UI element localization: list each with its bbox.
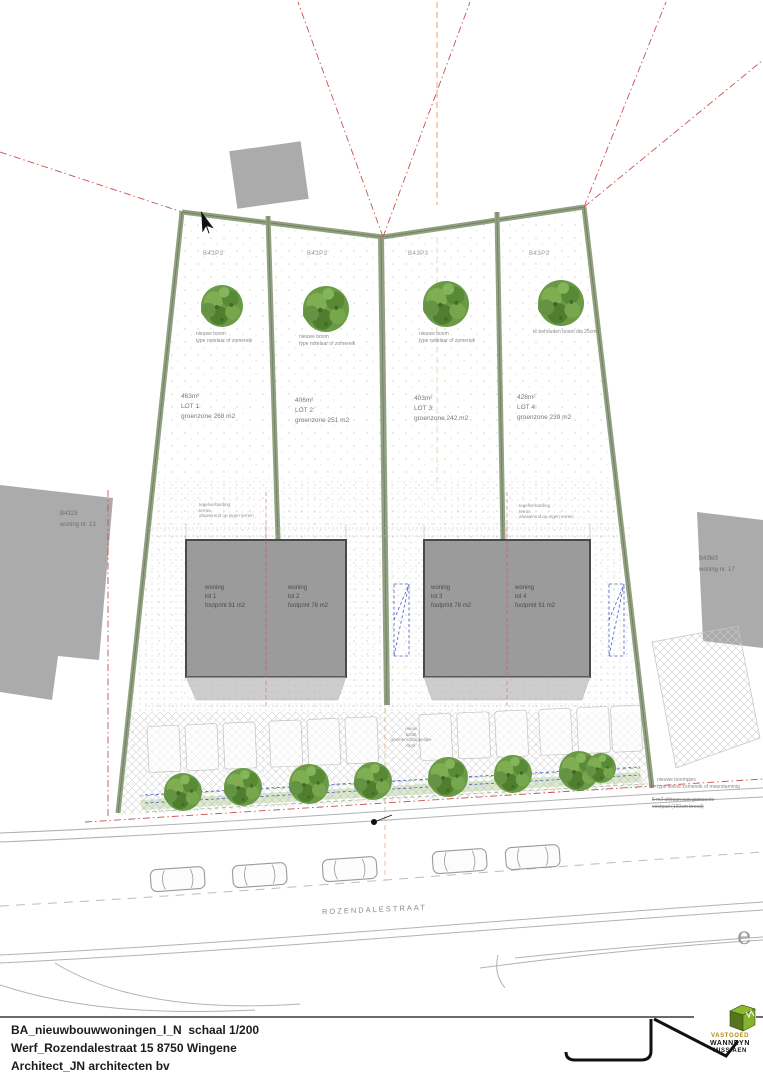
vwm-logo: VASTGOED WANNEYN MISSIAEN <box>700 1006 760 1055</box>
car-icon <box>432 848 487 874</box>
vwm-word-vastgoed: VASTGOED <box>700 1033 760 1040</box>
title-project: BA_nieuwbouwwoningen_I_N schaal 1/200 <box>11 1021 259 1039</box>
lot-2-code: B43P3 <box>307 249 328 259</box>
neighbor-building-left <box>0 485 113 700</box>
cede-to-municipality-annotation: 5 m2 afstaan aan gemeente voetpad (100cm… <box>652 797 714 810</box>
lot-3-info: 403m² LOT 3: groenzone 242 m2 <box>414 394 468 424</box>
vwm-word-missiaen: MISSIAEN <box>700 1048 760 1055</box>
house-lot4-label: woning lot 4 footprint 91 m2 <box>515 584 555 611</box>
hatched-parcel <box>652 626 760 768</box>
cars <box>150 844 560 892</box>
house-lot1-label: woning lot 1 footprint 91 m2 <box>205 584 245 611</box>
small-trees-annotation: nieuwe boompjes type kleine zomereik of … <box>657 777 740 790</box>
road-lines <box>0 788 763 1012</box>
lot-tree <box>303 286 349 332</box>
title-block: BA_nieuwbouwwoningen_I_N schaal 1/200 We… <box>11 1021 259 1075</box>
lot-1-info: 463m² LOT 1: groenzone 268 m2 <box>181 392 235 422</box>
lot-4-tree-label: te behouden boom dia 25cm <box>533 329 596 336</box>
neighbor-right-label: B43M3 woning nr. 17 <box>699 554 735 576</box>
paving-annotation-right: tegelverharding terras afwaterend op eig… <box>519 503 574 520</box>
lot-4-code: B43P3 <box>529 249 550 259</box>
lot-4-info: 428m² LOT 4: groenzone 239 m2 <box>517 393 571 423</box>
car-icon <box>232 862 287 888</box>
lot-2-tree-label: nieuwe boomtype notelaar of zomereik <box>299 334 355 347</box>
car-icon <box>322 856 377 882</box>
title-site: Werf_Rozendalestraat 15 8750 Wingene <box>11 1039 259 1057</box>
lot-3-tree-label: nieuwe boomtype notelaar of zomereik <box>419 331 475 344</box>
lot-tree <box>423 281 469 327</box>
paving-annotation-left: tegelverharding terras afwaterend op eig… <box>199 502 254 519</box>
stray-letter: e <box>737 922 751 950</box>
site-plan-sheet: B43P3 B43P3 B43P3 B43P3 nieuwe boomtype … <box>0 0 763 1080</box>
house-lot3-label: woning lot 3 footprint 78 m2 <box>431 584 471 611</box>
lot-3-code: B43P3 <box>408 249 429 259</box>
vwm-word-wanneyn: WANNEYN <box>700 1040 760 1048</box>
lot-2-info: 406m² LOT 2: groenzone 251 m2 <box>295 396 349 426</box>
lot-tree <box>538 280 584 326</box>
vwm-cube-spacer <box>700 1006 760 1033</box>
site-plan-drawing <box>0 0 763 1080</box>
neighbor-building-top <box>229 141 308 208</box>
neighbor-left-label: B4323 woning nr. 13 <box>60 509 96 531</box>
lot-1-tree-label: nieuwe boomtype notelaar of zomereik <box>196 331 252 344</box>
driveway-annotation: nieuw asfalt gemeenschappelijke oprit <box>383 726 439 748</box>
car-icon <box>505 844 560 870</box>
title-architect: Architect_JN architecten bv <box>11 1057 259 1075</box>
car-icon <box>150 866 205 892</box>
lot-1-code: B43P3 <box>203 249 224 259</box>
lot-tree <box>201 285 243 327</box>
house-lot2-label: woning lot 2 footprint 78 m2 <box>288 584 328 611</box>
